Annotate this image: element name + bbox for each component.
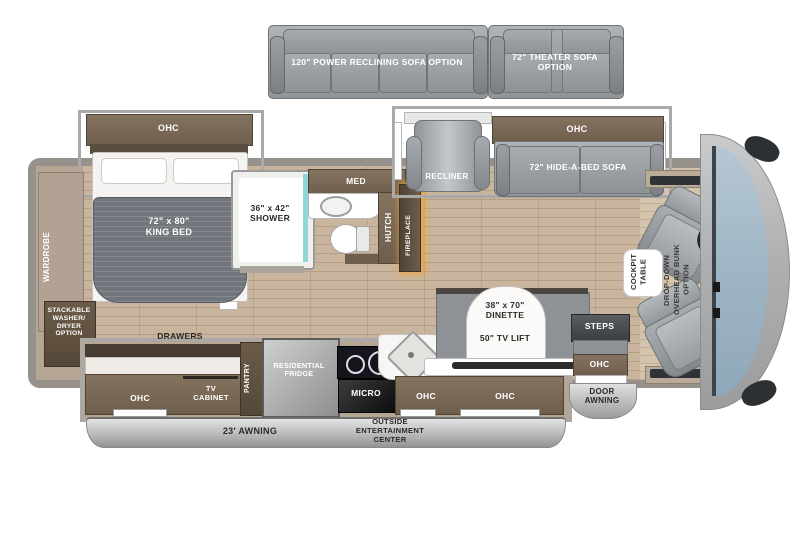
fireplace-label: FIREPLACE bbox=[402, 190, 416, 264]
dresser-drawers bbox=[85, 344, 240, 357]
awning-label: 23' AWNING bbox=[190, 426, 310, 437]
faucet bbox=[408, 352, 414, 358]
power-sofa-label: 120" POWER RECLINING SOFA OPTION bbox=[278, 57, 476, 67]
storage-door bbox=[113, 409, 167, 417]
windshield-trim bbox=[713, 308, 720, 318]
recliner-arm bbox=[474, 136, 490, 190]
dinette-table bbox=[466, 286, 546, 362]
storage-door bbox=[460, 409, 540, 417]
door-awning-label: DOOR AWNING bbox=[569, 387, 635, 406]
shower-label: 36" x 42" SHOWER bbox=[235, 203, 305, 223]
micro-label: MICRO bbox=[338, 388, 394, 398]
bath-sink bbox=[320, 196, 352, 217]
dinette-label: 38" x 70" DINETTE bbox=[460, 300, 550, 320]
tv-cabinet-label: TV CABINET bbox=[182, 385, 240, 403]
wardrobe-label: WARDROBE bbox=[42, 212, 56, 302]
kitchen-ohc-label: OHC bbox=[396, 391, 456, 401]
bedroom-ohc-label: OHC bbox=[86, 123, 251, 134]
pantry-label: PANTRY bbox=[244, 348, 258, 408]
shower-step bbox=[240, 266, 304, 273]
med-cabinet-label: MED bbox=[308, 176, 404, 186]
rv-floorplan: 120" POWER RECLINING SOFA OPTION 72" THE… bbox=[0, 0, 800, 545]
tv-lift-label: 50" TV LIFT bbox=[455, 333, 555, 343]
steps-label: STEPS bbox=[571, 321, 628, 331]
sofa-backrest bbox=[283, 29, 475, 55]
storage-door bbox=[400, 409, 436, 417]
hide-a-bed-sofa-label: 72" HIDE-A-BED SOFA bbox=[494, 162, 662, 172]
toilet-tank bbox=[356, 226, 370, 252]
ohc-cabinet-label: OHC bbox=[95, 393, 185, 403]
pillow bbox=[173, 158, 239, 184]
recliner-arm bbox=[406, 136, 422, 190]
overhead-bunk-label: DROP-DOWN OVERHEAD BUNK OPTION bbox=[662, 228, 696, 332]
hutch-label: HUTCH bbox=[384, 198, 398, 256]
pillow bbox=[101, 158, 167, 184]
window bbox=[394, 122, 402, 180]
tv-lift-slot bbox=[452, 362, 582, 369]
burner bbox=[346, 355, 365, 374]
washer-dryer-label: STACKABLE WASHER/ DRYER OPTION bbox=[44, 307, 94, 338]
kitchen-ohc-label-2: OHC bbox=[470, 391, 540, 401]
patio-awning bbox=[86, 417, 566, 448]
bed-blanket bbox=[93, 197, 247, 303]
entertainment-label: OUTSIDE ENTERTAINMENT CENTER bbox=[330, 418, 450, 445]
living-ohc-label: OHC bbox=[492, 124, 662, 135]
recliner-label: RECLINER bbox=[404, 172, 490, 181]
cockpit-table-label: COCKPIT TABLE bbox=[629, 252, 655, 292]
fridge-label: RESIDENTIAL FRIDGE bbox=[262, 362, 336, 379]
tv-cabinet-top bbox=[183, 376, 238, 379]
windshield-trim bbox=[713, 282, 720, 292]
entry-ohc-label: OHC bbox=[573, 359, 626, 369]
theater-sofa-label: 72" THEATER SOFA OPTION bbox=[492, 52, 618, 72]
king-bed-label: 72" x 80" KING BED bbox=[104, 216, 234, 237]
drawers-label: DRAWERS bbox=[125, 331, 235, 341]
